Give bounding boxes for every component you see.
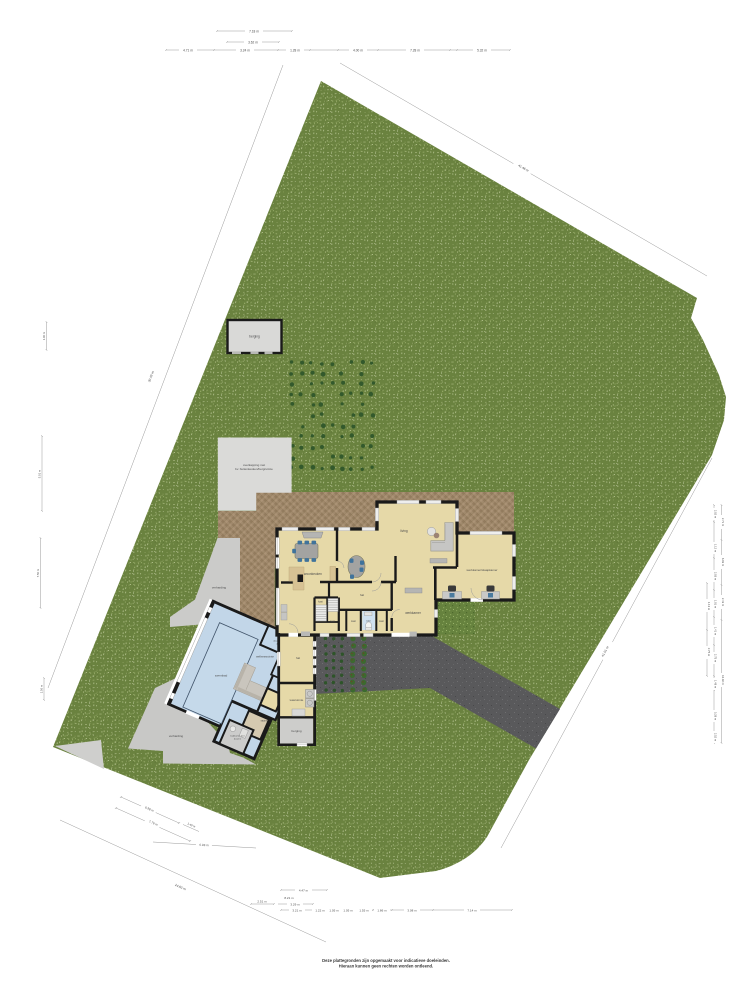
svg-text:1.28 m: 1.28 m [290,49,300,53]
svg-text:verharding: verharding [212,586,227,590]
svg-text:toilet: toilet [366,620,371,623]
svg-text:3.28 m: 3.28 m [714,712,718,721]
svg-text:hal: hal [360,593,364,597]
svg-text:1.00 m: 1.00 m [42,331,46,340]
svg-text:woonkeuken: woonkeuken [304,572,322,576]
svg-text:berging: berging [291,729,301,733]
svg-text:6.03 m: 6.03 m [721,558,725,567]
svg-text:2.43 m: 2.43 m [721,598,725,607]
svg-text:Deze plattegronden zijn opgema: Deze plattegronden zijn opgemaakt voor i… [322,958,450,963]
svg-text:3.24 m: 3.24 m [240,49,250,53]
svg-text:2.51 m: 2.51 m [257,900,267,904]
svg-text:3.62 m: 3.62 m [248,41,258,45]
svg-text:1.86 m: 1.86 m [377,909,387,913]
svg-text:2.75 m: 2.75 m [707,648,711,657]
svg-text:1.41 m: 1.41 m [714,627,718,636]
svg-text:verharding: verharding [169,734,184,738]
svg-text:Hieraan kunnen geen rechten wo: Hieraan kunnen geen rechten worden ontle… [339,964,433,969]
svg-text:sauna: sauna [261,720,268,723]
svg-text:living: living [400,529,407,533]
svg-text:5.32 m: 5.32 m [477,49,487,53]
svg-text:3.08 m: 3.08 m [407,909,417,913]
svg-text:1.12 m: 1.12 m [714,544,718,553]
svg-text:3.21 m: 3.21 m [292,909,302,913]
svg-text:4.47 m: 4.47 m [299,889,309,893]
svg-text:badkamer met: badkamer met [231,735,245,738]
svg-text:1.48 m: 1.48 m [714,680,718,689]
svg-text:kast: kast [330,620,335,623]
svg-text:1.22 m: 1.22 m [315,909,325,913]
svg-text:2.02 m: 2.02 m [714,510,718,519]
svg-text:kast: kast [379,620,384,623]
svg-text:1.56 m: 1.56 m [40,684,44,693]
svg-text:1.13 m: 1.13 m [707,602,711,611]
svg-text:berging: berging [249,335,260,339]
svg-text:4.00 m: 4.00 m [353,49,363,53]
svg-text:werkkamer/slaapkamer: werkkamer/slaapkamer [466,568,497,572]
svg-text:hal: hal [296,656,300,660]
svg-text:1.55 m: 1.55 m [359,909,369,913]
svg-text:3.29 m: 3.29 m [290,903,300,907]
svg-text:kast: kast [318,601,323,604]
svg-text:werkkamer: werkkamer [405,611,422,615]
svg-text:1.01 m: 1.01 m [714,600,718,609]
svg-text:kast: kast [351,620,356,623]
svg-text:douche: douche [234,739,242,741]
svg-text:7.50 m: 7.50 m [36,568,40,577]
svg-text:7.18 m: 7.18 m [249,30,259,34]
svg-text:wasruimte: wasruimte [290,698,304,702]
svg-text:2.03 m: 2.03 m [714,572,718,581]
svg-text:6.93 m: 6.93 m [199,843,209,848]
svg-text:bv. buitenkeuken/bergruimte: bv. buitenkeuken/bergruimte [235,467,273,471]
svg-text:zwembad: zwembad [215,674,228,678]
svg-text:4.71 m: 4.71 m [183,49,193,53]
svg-text:2.71 m: 2.71 m [721,518,725,527]
svg-text:wellnessruimte: wellnessruimte [256,655,274,659]
svg-text:7.14 m: 7.14 m [467,909,477,913]
svg-text:10.02 m: 10.02 m [721,675,725,685]
svg-text:2.75 m: 2.75 m [714,654,718,663]
svg-text:2.52 m: 2.52 m [714,733,718,742]
svg-text:1.05 m: 1.05 m [329,909,339,913]
svg-text:5.01 m: 5.01 m [38,469,42,478]
svg-text:1.05 m: 1.05 m [343,909,353,913]
svg-text:8.21 m: 8.21 m [284,896,294,900]
svg-text:7.28 m: 7.28 m [410,49,420,53]
